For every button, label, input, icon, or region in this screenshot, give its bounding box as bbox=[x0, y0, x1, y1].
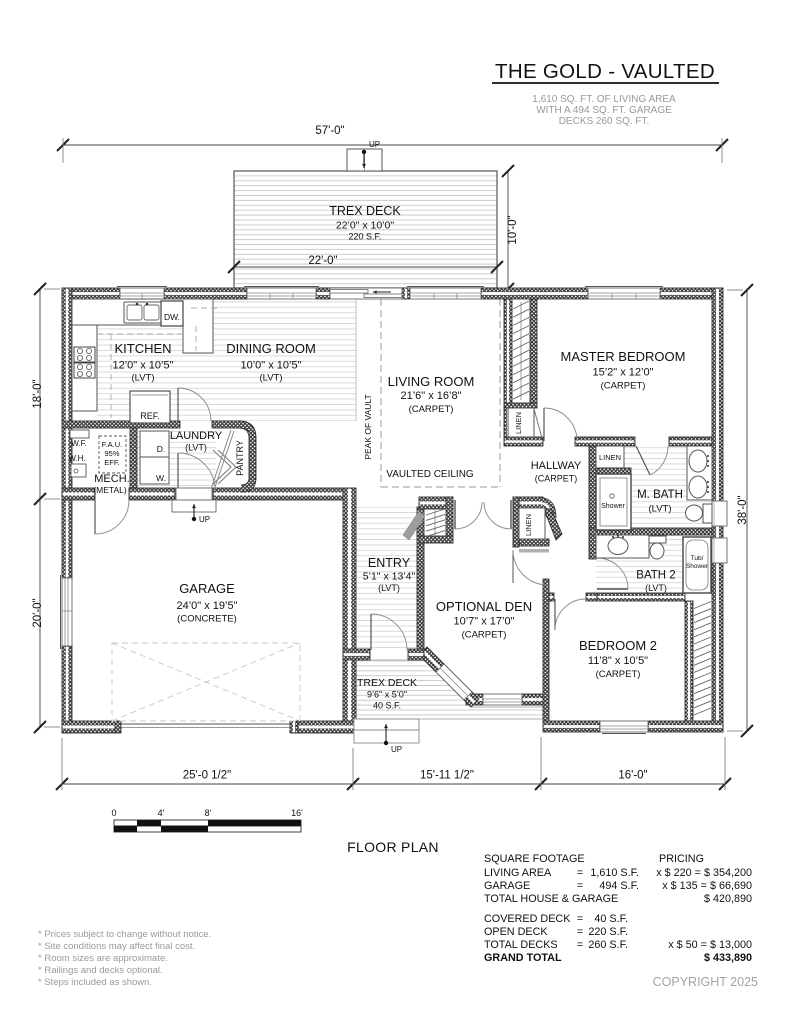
svg-text:15’2" x 12’0": 15’2" x 12’0" bbox=[592, 367, 653, 379]
svg-text:(LVT): (LVT) bbox=[648, 504, 671, 515]
svg-text:(LVT): (LVT) bbox=[131, 373, 154, 384]
svg-text:(CARPET): (CARPET) bbox=[535, 474, 578, 484]
svg-text:KITCHEN: KITCHEN bbox=[114, 341, 171, 356]
svg-text:DECKS 260 SQ. FT.: DECKS 260 SQ. FT. bbox=[559, 116, 650, 127]
svg-text:* Prices subject to change wit: * Prices subject to change without notic… bbox=[38, 929, 211, 940]
svg-text:* Railings and decks optional.: * Railings and decks optional. bbox=[38, 965, 163, 976]
svg-text:W.F.: W.F. bbox=[71, 439, 87, 448]
svg-text:10'-0": 10'-0" bbox=[507, 215, 519, 244]
svg-text:(LVT): (LVT) bbox=[185, 443, 207, 453]
svg-text:OPTIONAL DEN: OPTIONAL DEN bbox=[436, 599, 532, 614]
svg-text:10’7" x 17’0": 10’7" x 17’0" bbox=[453, 616, 514, 628]
svg-text:Tub/: Tub/ bbox=[691, 555, 704, 562]
svg-text:4': 4' bbox=[158, 808, 165, 818]
svg-text:16'-0": 16'-0" bbox=[618, 770, 647, 782]
svg-text:38'-0": 38'-0" bbox=[737, 495, 749, 524]
svg-text:D.: D. bbox=[157, 444, 166, 454]
svg-text:PEAK OF VAULT: PEAK OF VAULT bbox=[363, 394, 373, 459]
svg-text:10’0" x 10’5": 10’0" x 10’5" bbox=[240, 360, 301, 372]
svg-text:(LVT): (LVT) bbox=[259, 373, 282, 384]
svg-text:PANTRY: PANTRY bbox=[235, 440, 245, 476]
svg-text:TREX DECK: TREX DECK bbox=[329, 204, 401, 218]
svg-text:15'-11 1/2": 15'-11 1/2" bbox=[420, 770, 474, 782]
svg-text:DINING ROOM: DINING ROOM bbox=[226, 341, 316, 356]
svg-text:TREX DECK: TREX DECK bbox=[357, 677, 417, 689]
svg-text:25'-0 1/2": 25'-0 1/2" bbox=[183, 770, 231, 782]
svg-text:x $ 135 = $ 66,690: x $ 135 = $ 66,690 bbox=[662, 880, 752, 892]
svg-text:* Room sizes are approximate.: * Room sizes are approximate. bbox=[38, 953, 168, 964]
svg-text:1,610 S.F.: 1,610 S.F. bbox=[590, 867, 639, 879]
svg-text:BEDROOM 2: BEDROOM 2 bbox=[579, 638, 657, 653]
svg-text:LINEN: LINEN bbox=[524, 514, 533, 536]
svg-text:22’0" x 10’0": 22’0" x 10’0" bbox=[336, 220, 395, 232]
svg-text:11’8" x 10’5": 11’8" x 10’5" bbox=[588, 655, 648, 667]
svg-text:F.A.U.: F.A.U. bbox=[102, 440, 122, 449]
svg-text:220 S.F.: 220 S.F. bbox=[588, 926, 628, 938]
svg-text:WITH A 494 SQ. FT. GARAGE: WITH A 494 SQ. FT. GARAGE bbox=[536, 105, 672, 116]
svg-text:LIVING AREA: LIVING AREA bbox=[484, 867, 552, 879]
svg-text:=: = bbox=[577, 939, 583, 951]
svg-text:(CONCRETE): (CONCRETE) bbox=[177, 614, 237, 625]
svg-text:260 S.F.: 260 S.F. bbox=[588, 939, 628, 951]
svg-text:9’6" x 5’0": 9’6" x 5’0" bbox=[367, 690, 407, 700]
svg-text:(CARPET): (CARPET) bbox=[462, 630, 507, 641]
svg-text:(METAL): (METAL) bbox=[93, 485, 127, 495]
svg-text:40 S.F.: 40 S.F. bbox=[373, 701, 401, 711]
svg-text:OPEN DECK: OPEN DECK bbox=[484, 926, 548, 938]
svg-text:GRAND TOTAL: GRAND TOTAL bbox=[484, 952, 562, 964]
svg-text:COVERED DECK: COVERED DECK bbox=[484, 913, 571, 925]
svg-text:PRICING: PRICING bbox=[659, 853, 704, 865]
svg-text:EFF.: EFF. bbox=[104, 458, 119, 467]
svg-text:BATH 2: BATH 2 bbox=[636, 570, 675, 582]
svg-text:* Steps included as shown.: * Steps included as shown. bbox=[38, 977, 152, 988]
svg-text:494 S.F.: 494 S.F. bbox=[599, 880, 639, 892]
svg-text:TOTAL HOUSE & GARAGE: TOTAL HOUSE & GARAGE bbox=[484, 893, 618, 905]
svg-text:12’0" x 10’5": 12’0" x 10’5" bbox=[112, 360, 173, 372]
svg-text:$ 420,890: $ 420,890 bbox=[704, 893, 752, 905]
svg-text:MECH.: MECH. bbox=[94, 473, 129, 485]
svg-text:COPYRIGHT 2025: COPYRIGHT 2025 bbox=[653, 975, 758, 989]
svg-text:x $ 220 = $ 354,200: x $ 220 = $ 354,200 bbox=[656, 867, 752, 879]
svg-text:=: = bbox=[577, 913, 583, 925]
svg-text:24’0" x 19’5": 24’0" x 19’5" bbox=[176, 600, 237, 612]
svg-text:GARAGE: GARAGE bbox=[179, 581, 235, 596]
svg-text:W.H.: W.H. bbox=[68, 454, 85, 463]
svg-text:LIVING ROOM: LIVING ROOM bbox=[388, 374, 475, 389]
svg-text:=: = bbox=[577, 880, 583, 892]
svg-text:(LVT): (LVT) bbox=[645, 583, 667, 593]
svg-text:M. BATH: M. BATH bbox=[637, 489, 683, 501]
svg-text:5’1" x 13’4": 5’1" x 13’4" bbox=[363, 571, 416, 583]
svg-text:20'-0": 20'-0" bbox=[32, 598, 44, 627]
svg-text:40 S.F.: 40 S.F. bbox=[594, 913, 628, 925]
svg-text:8': 8' bbox=[205, 808, 212, 818]
svg-text:Shower: Shower bbox=[686, 563, 709, 570]
svg-text:(CARPET): (CARPET) bbox=[409, 404, 454, 415]
svg-text:DW.: DW. bbox=[164, 312, 180, 322]
svg-text:UP: UP bbox=[199, 515, 210, 524]
svg-text:VAULTED CEILING: VAULTED CEILING bbox=[386, 469, 474, 480]
svg-text:TOTAL DECKS: TOTAL DECKS bbox=[484, 939, 558, 951]
svg-text:HALLWAY: HALLWAY bbox=[531, 460, 582, 472]
svg-text:LINEN: LINEN bbox=[514, 412, 523, 434]
svg-text:21’6" x 16’8": 21’6" x 16’8" bbox=[400, 390, 461, 402]
svg-text:GARAGE: GARAGE bbox=[484, 880, 530, 892]
svg-text:=: = bbox=[577, 867, 583, 879]
svg-text:95%: 95% bbox=[104, 449, 119, 458]
svg-text:220 S.F.: 220 S.F. bbox=[348, 232, 381, 242]
svg-text:UP: UP bbox=[391, 745, 402, 754]
svg-text:W.: W. bbox=[156, 473, 166, 483]
svg-text:LAUNDRY: LAUNDRY bbox=[170, 430, 223, 442]
svg-text:REF.: REF. bbox=[140, 411, 160, 421]
svg-text:(CARPET): (CARPET) bbox=[596, 669, 641, 680]
svg-text:18'-0": 18'-0" bbox=[32, 379, 44, 408]
svg-text:MASTER BEDROOM: MASTER BEDROOM bbox=[561, 349, 686, 364]
svg-text:x $ 50 = $ 13,000: x $ 50 = $ 13,000 bbox=[668, 939, 752, 951]
svg-text:57'-0": 57'-0" bbox=[315, 125, 344, 137]
svg-text:Shower: Shower bbox=[601, 503, 625, 510]
svg-text:16': 16' bbox=[291, 808, 303, 818]
svg-text:UP: UP bbox=[369, 140, 380, 149]
svg-text:SQUARE FOOTAGE: SQUARE FOOTAGE bbox=[484, 853, 585, 865]
svg-text:1,610 SQ. FT. OF LIVING AREA: 1,610 SQ. FT. OF LIVING AREA bbox=[532, 94, 676, 105]
svg-text:* Site conditions may affect f: * Site conditions may affect final cost. bbox=[38, 941, 195, 952]
svg-text:22'-0": 22'-0" bbox=[308, 255, 337, 267]
svg-text:0: 0 bbox=[111, 808, 116, 818]
svg-text:(LVT): (LVT) bbox=[378, 583, 400, 593]
svg-text:FLOOR PLAN: FLOOR PLAN bbox=[347, 839, 439, 855]
svg-text:LINEN: LINEN bbox=[599, 453, 621, 462]
svg-text:$ 433,890: $ 433,890 bbox=[704, 952, 752, 964]
svg-text:(CARPET): (CARPET) bbox=[601, 381, 646, 392]
svg-text:THE GOLD - VAULTED: THE GOLD - VAULTED bbox=[495, 60, 715, 83]
svg-text:=: = bbox=[577, 926, 583, 938]
svg-text:ENTRY: ENTRY bbox=[368, 556, 411, 570]
